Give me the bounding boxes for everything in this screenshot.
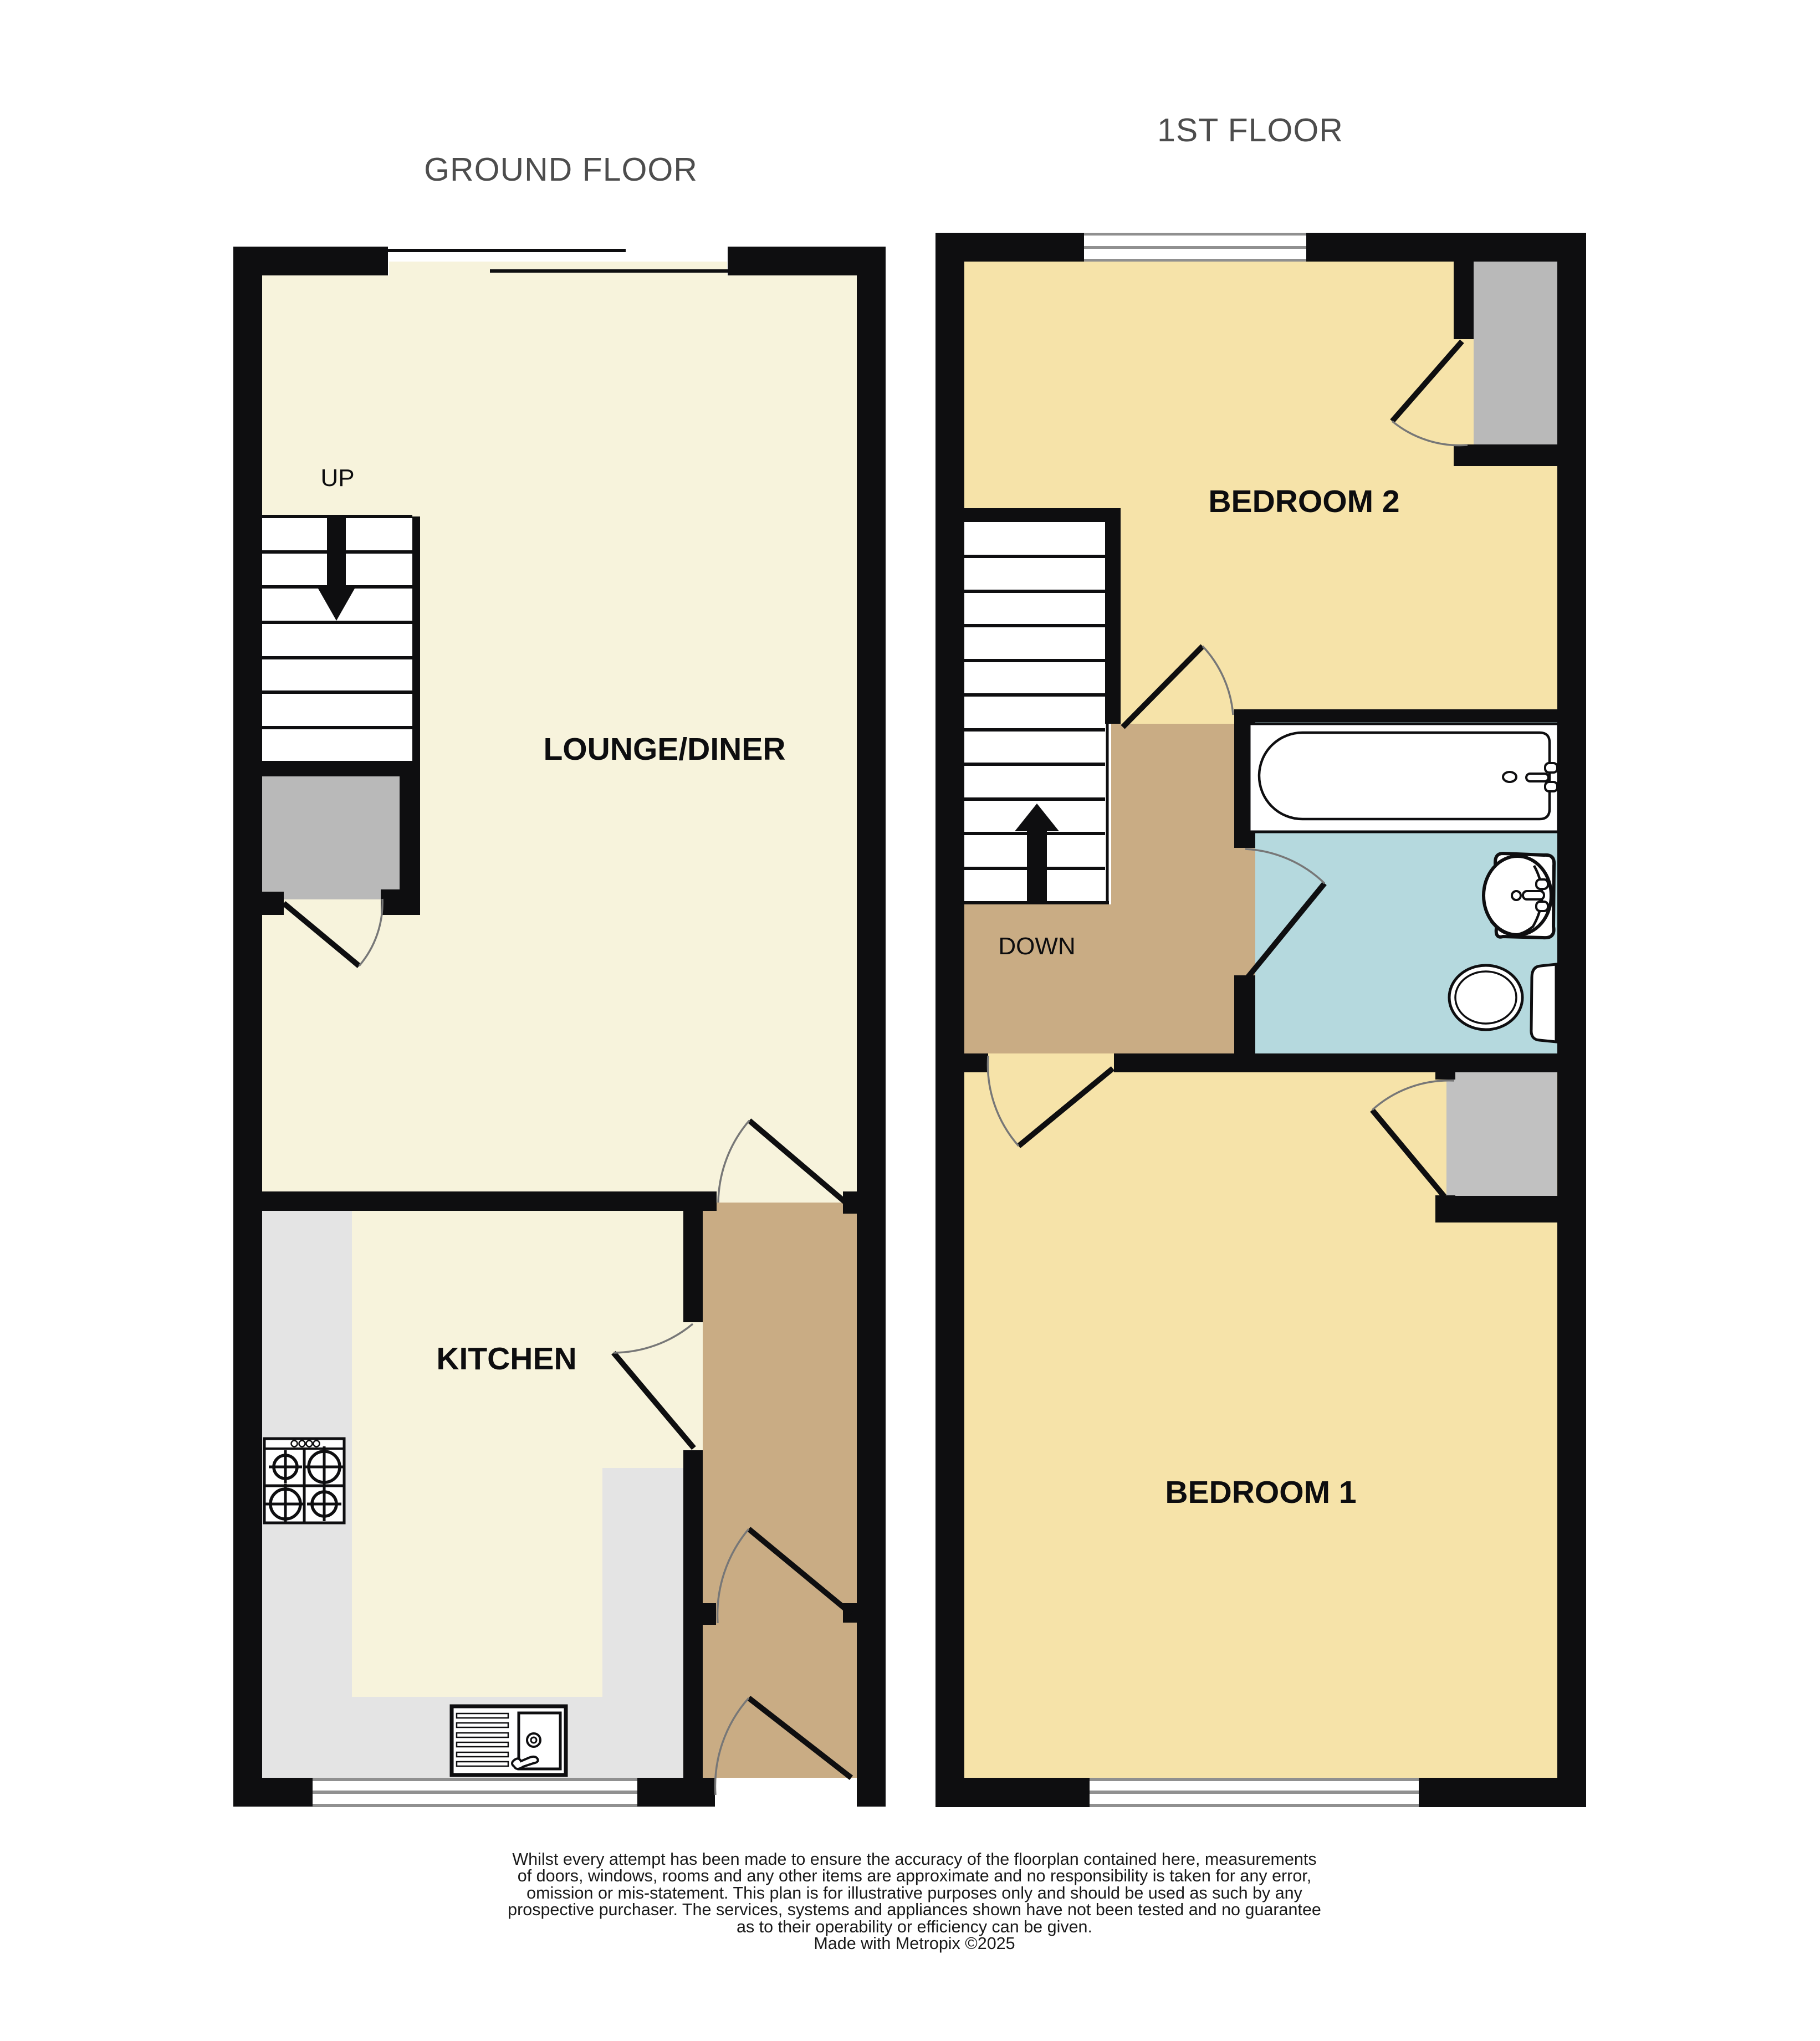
svg-text:Made with Metropix ©2025: Made with Metropix ©2025: [814, 1934, 1015, 1953]
svg-text:DOWN: DOWN: [998, 933, 1075, 960]
svg-text:as to their operability or eff: as to their operability or efficiency ca…: [737, 1917, 1092, 1936]
svg-text:LOUNGE/DINER: LOUNGE/DINER: [543, 732, 785, 767]
svg-text:UP: UP: [320, 464, 354, 492]
svg-text:omission or mis-statement. Thi: omission or mis-statement. This plan is …: [526, 1884, 1302, 1902]
svg-text:BEDROOM 2: BEDROOM 2: [1208, 484, 1399, 519]
svg-text:KITCHEN: KITCHEN: [436, 1341, 576, 1377]
svg-text:of doors, windows, rooms and a: of doors, windows, rooms and any other i…: [518, 1866, 1312, 1885]
svg-text:1ST FLOOR: 1ST FLOOR: [1157, 112, 1343, 149]
svg-text:prospective purchaser. The ser: prospective purchaser. The services, sys…: [508, 1900, 1321, 1919]
svg-text:Whilst every attempt has been: Whilst every attempt has been made to en…: [512, 1850, 1316, 1869]
svg-text:BEDROOM 1: BEDROOM 1: [1165, 1475, 1356, 1510]
svg-text:GROUND FLOOR: GROUND FLOOR: [424, 151, 698, 188]
